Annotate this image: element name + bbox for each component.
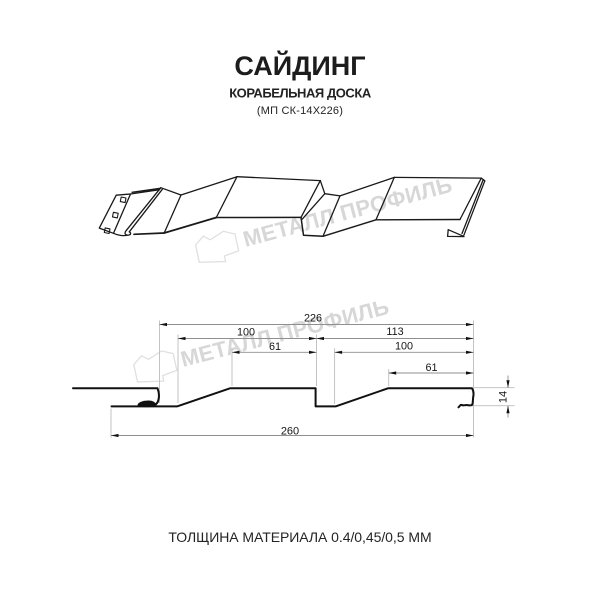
- svg-text:14: 14: [498, 391, 510, 403]
- svg-text:САЙДИНГ: САЙДИНГ: [234, 50, 365, 81]
- svg-text:61: 61: [269, 341, 281, 353]
- svg-text:100: 100: [395, 341, 413, 353]
- svg-text:260: 260: [281, 425, 299, 437]
- svg-text:КОРАБЕЛЬНАЯ ДОСКА: КОРАБЕЛЬНАЯ ДОСКА: [229, 86, 372, 101]
- svg-text:(МП СК-14Х226): (МП СК-14Х226): [257, 105, 343, 117]
- svg-text:226: 226: [304, 313, 322, 325]
- svg-text:100: 100: [237, 327, 255, 339]
- svg-text:61: 61: [425, 362, 437, 374]
- svg-text:ТОЛЩИНА МАТЕРИАЛА 0.4/0,45/0,5: ТОЛЩИНА МАТЕРИАЛА 0.4/0,45/0,5 ММ: [168, 529, 431, 545]
- svg-text:113: 113: [386, 326, 403, 338]
